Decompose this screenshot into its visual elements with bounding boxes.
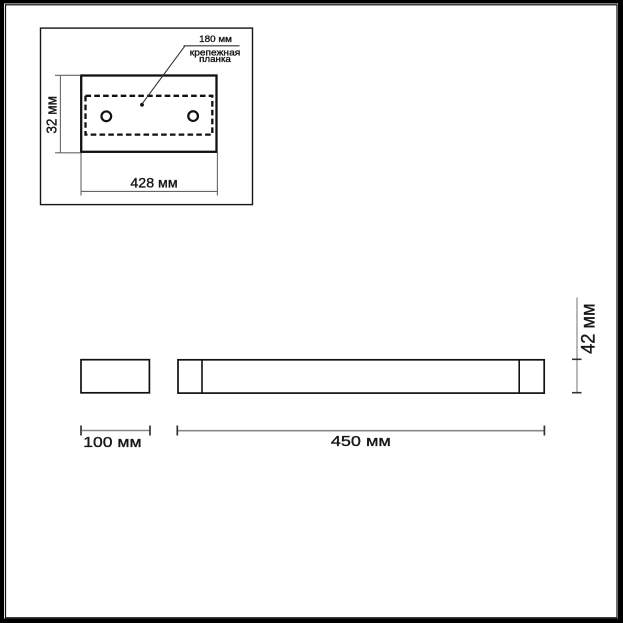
svg-text:планка: планка [199, 54, 231, 65]
svg-text:450 мм: 450 мм [331, 433, 391, 450]
svg-text:100 мм: 100 мм [83, 434, 141, 451]
svg-text:428 мм: 428 мм [130, 175, 177, 191]
svg-text:180 мм: 180 мм [199, 34, 232, 45]
svg-text:32 мм: 32 мм [44, 96, 61, 134]
svg-text:42 мм: 42 мм [577, 303, 598, 353]
